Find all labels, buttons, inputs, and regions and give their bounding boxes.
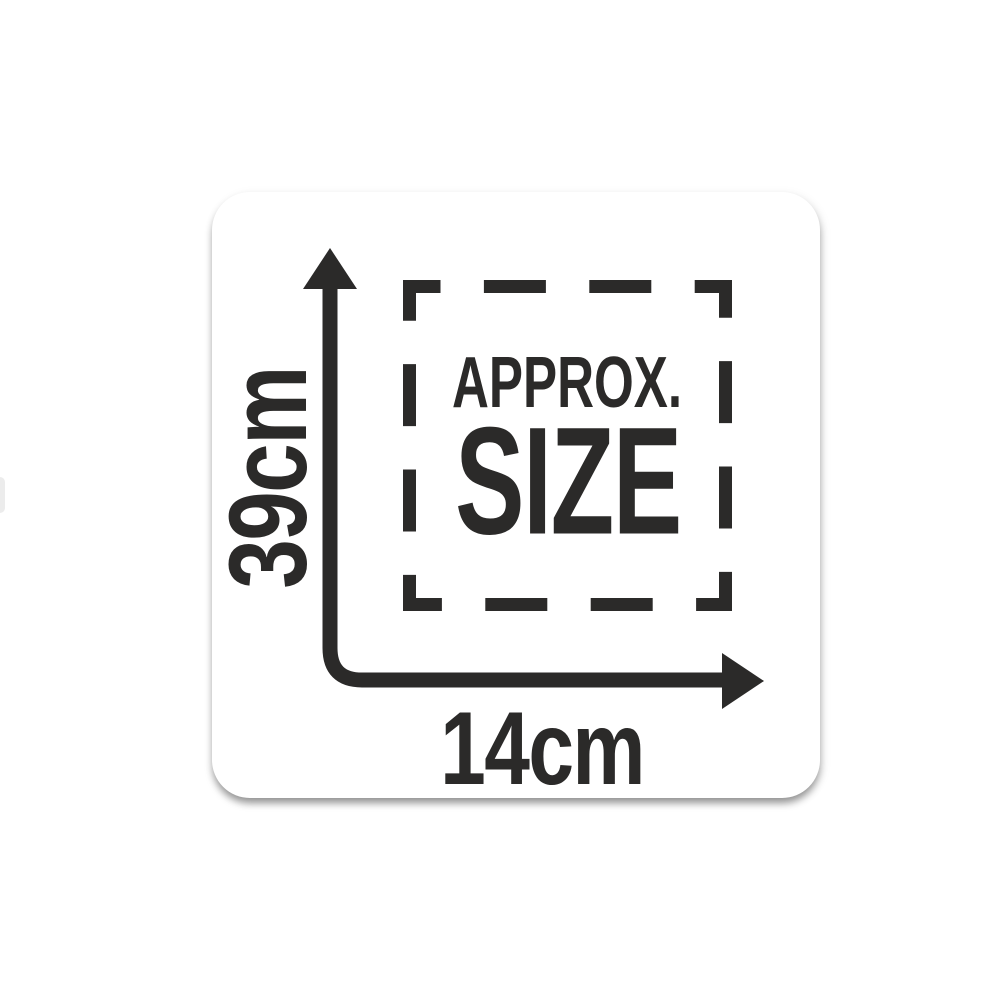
edge-artifact — [0, 477, 5, 513]
right-arrowhead-icon — [722, 653, 764, 709]
size-badge-card: APPROX. SIZE 39cm 14cm — [212, 192, 820, 798]
height-measurement-label: 39cm — [214, 367, 324, 588]
size-label: SIZE — [455, 405, 681, 558]
up-arrowhead-icon — [303, 248, 357, 289]
page-background: APPROX. SIZE 39cm 14cm — [0, 0, 1000, 1000]
width-measurement-label: 14cm — [440, 697, 644, 801]
